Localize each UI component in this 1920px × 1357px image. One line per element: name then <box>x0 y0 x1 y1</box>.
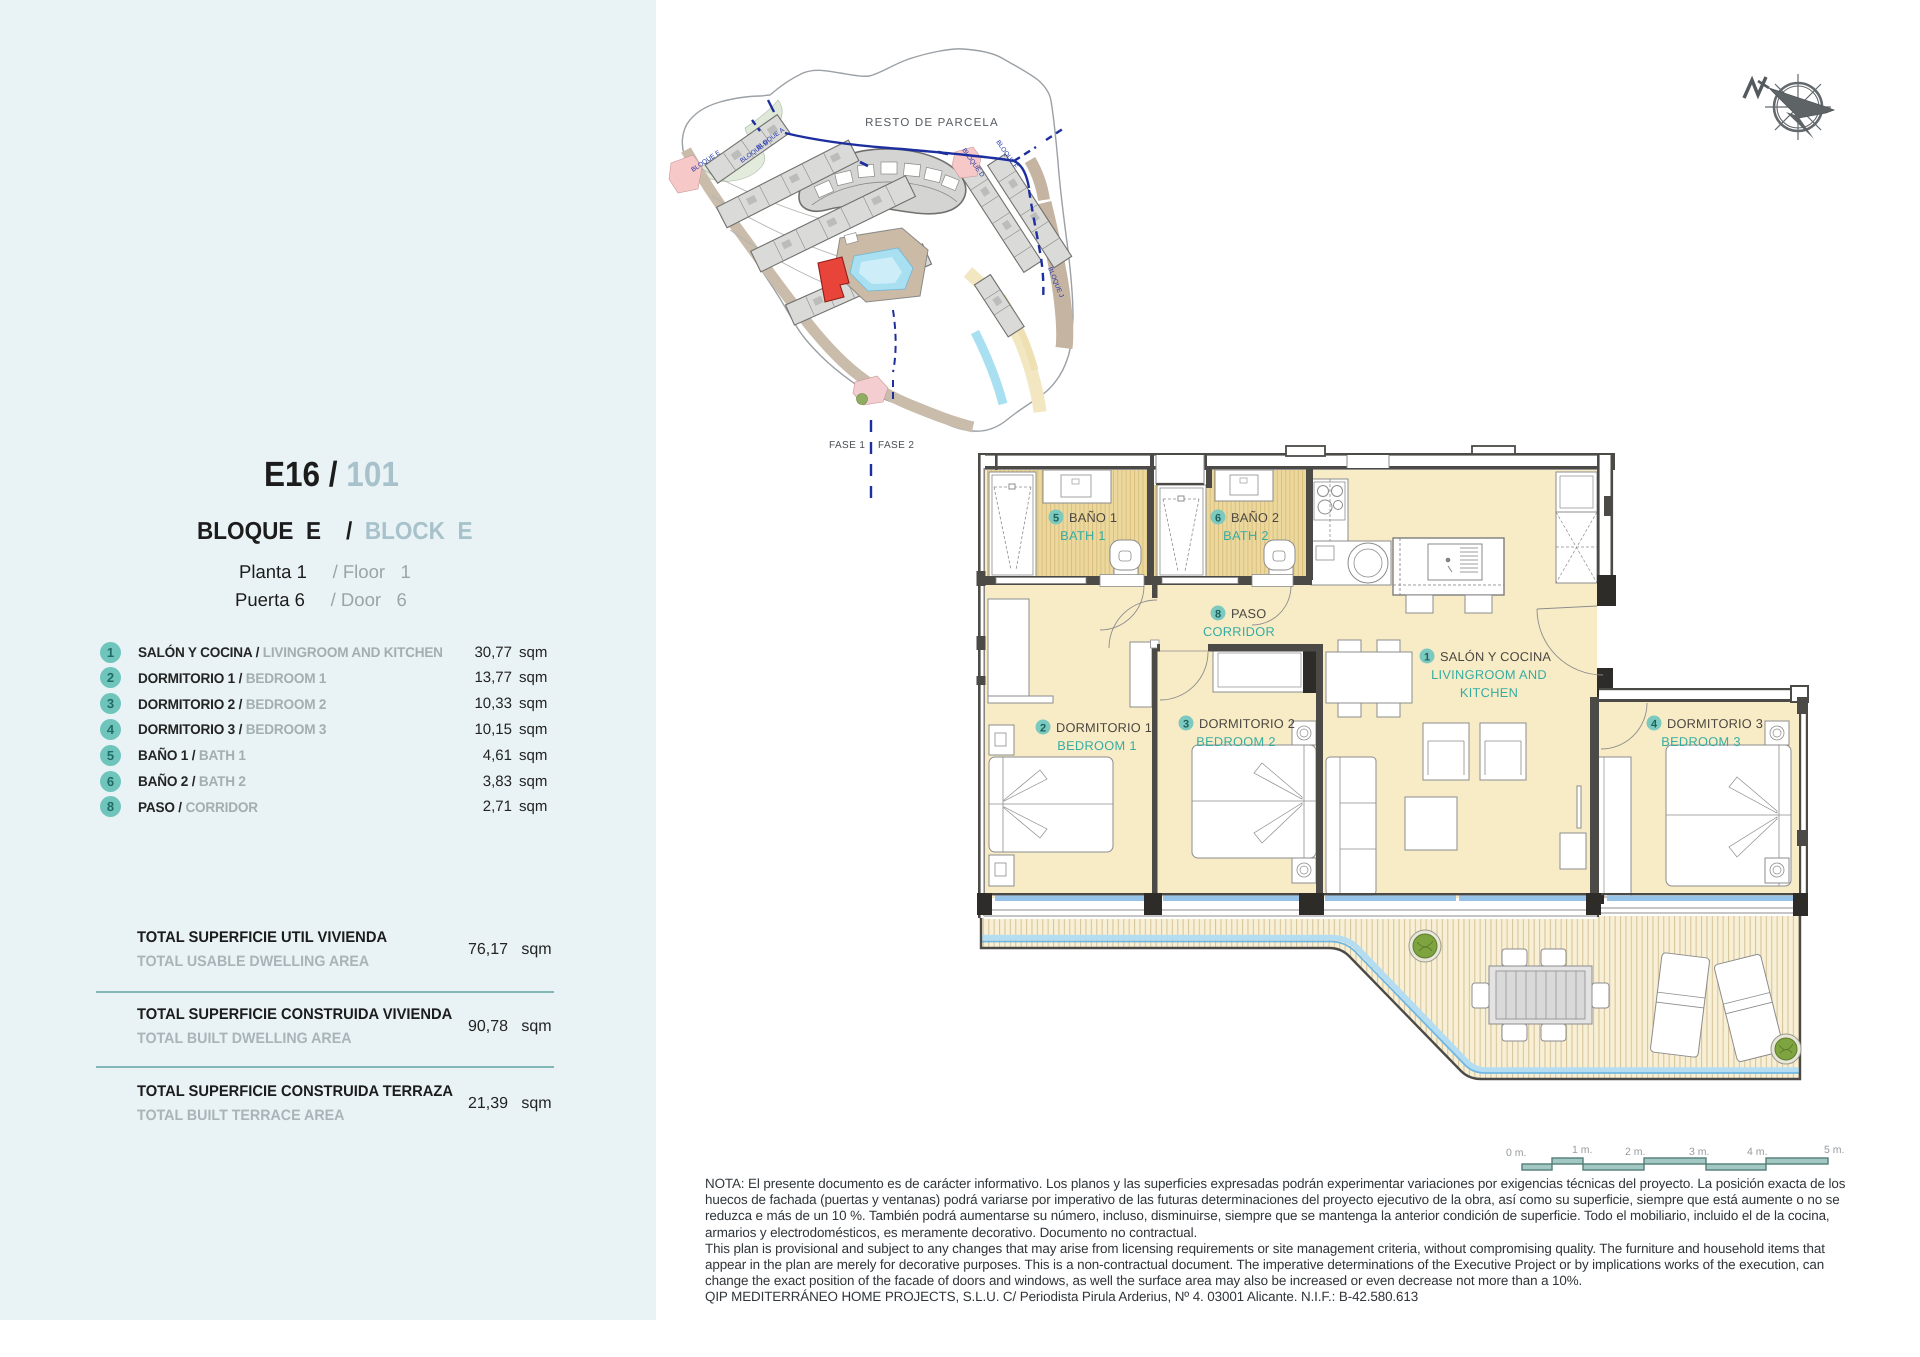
svg-text:5 m.: 5 m. <box>1824 1144 1844 1156</box>
svg-text:CORRIDOR: CORRIDOR <box>1203 624 1275 639</box>
svg-text:DORMITORIO 2: DORMITORIO 2 <box>1199 716 1295 731</box>
svg-text:DORMITORIO 1: DORMITORIO 1 <box>1056 720 1152 735</box>
svg-text:KITCHEN: KITCHEN <box>1460 685 1518 700</box>
svg-text:2 m.: 2 m. <box>1625 1146 1645 1158</box>
svg-text:FASE 2: FASE 2 <box>878 440 914 451</box>
svg-text:FASE 1: FASE 1 <box>829 440 865 451</box>
svg-text:BATH 2: BATH 2 <box>1223 528 1269 543</box>
svg-text:PASO: PASO <box>1231 606 1266 621</box>
svg-text:6: 6 <box>1215 513 1221 525</box>
svg-text:BEDROOM 3: BEDROOM 3 <box>1661 734 1741 749</box>
svg-text:LIVINGROOM AND: LIVINGROOM AND <box>1431 667 1547 682</box>
svg-text:4 m.: 4 m. <box>1747 1146 1767 1158</box>
svg-text:0 m.: 0 m. <box>1506 1147 1526 1159</box>
svg-text:3 m.: 3 m. <box>1689 1146 1709 1158</box>
svg-text:BAÑO 2: BAÑO 2 <box>1231 510 1279 525</box>
svg-text:2: 2 <box>1040 723 1046 735</box>
svg-text:BAÑO 1: BAÑO 1 <box>1069 510 1117 525</box>
svg-text:3: 3 <box>1183 719 1189 731</box>
svg-text:SALÓN Y COCINA: SALÓN Y COCINA <box>1440 649 1551 664</box>
svg-text:5: 5 <box>1053 513 1059 525</box>
svg-text:1: 1 <box>1424 652 1430 664</box>
svg-text:BEDROOM 2: BEDROOM 2 <box>1196 734 1276 749</box>
svg-text:BEDROOM 1: BEDROOM 1 <box>1057 738 1137 753</box>
svg-text:RESTO DE PARCELA: RESTO DE PARCELA <box>865 117 999 129</box>
svg-text:BATH 1: BATH 1 <box>1060 528 1106 543</box>
svg-text:8: 8 <box>1215 609 1221 621</box>
svg-text:1 m.: 1 m. <box>1572 1144 1592 1156</box>
svg-text:4: 4 <box>1651 719 1658 731</box>
svg-text:DORMITORIO 3: DORMITORIO 3 <box>1667 716 1763 731</box>
